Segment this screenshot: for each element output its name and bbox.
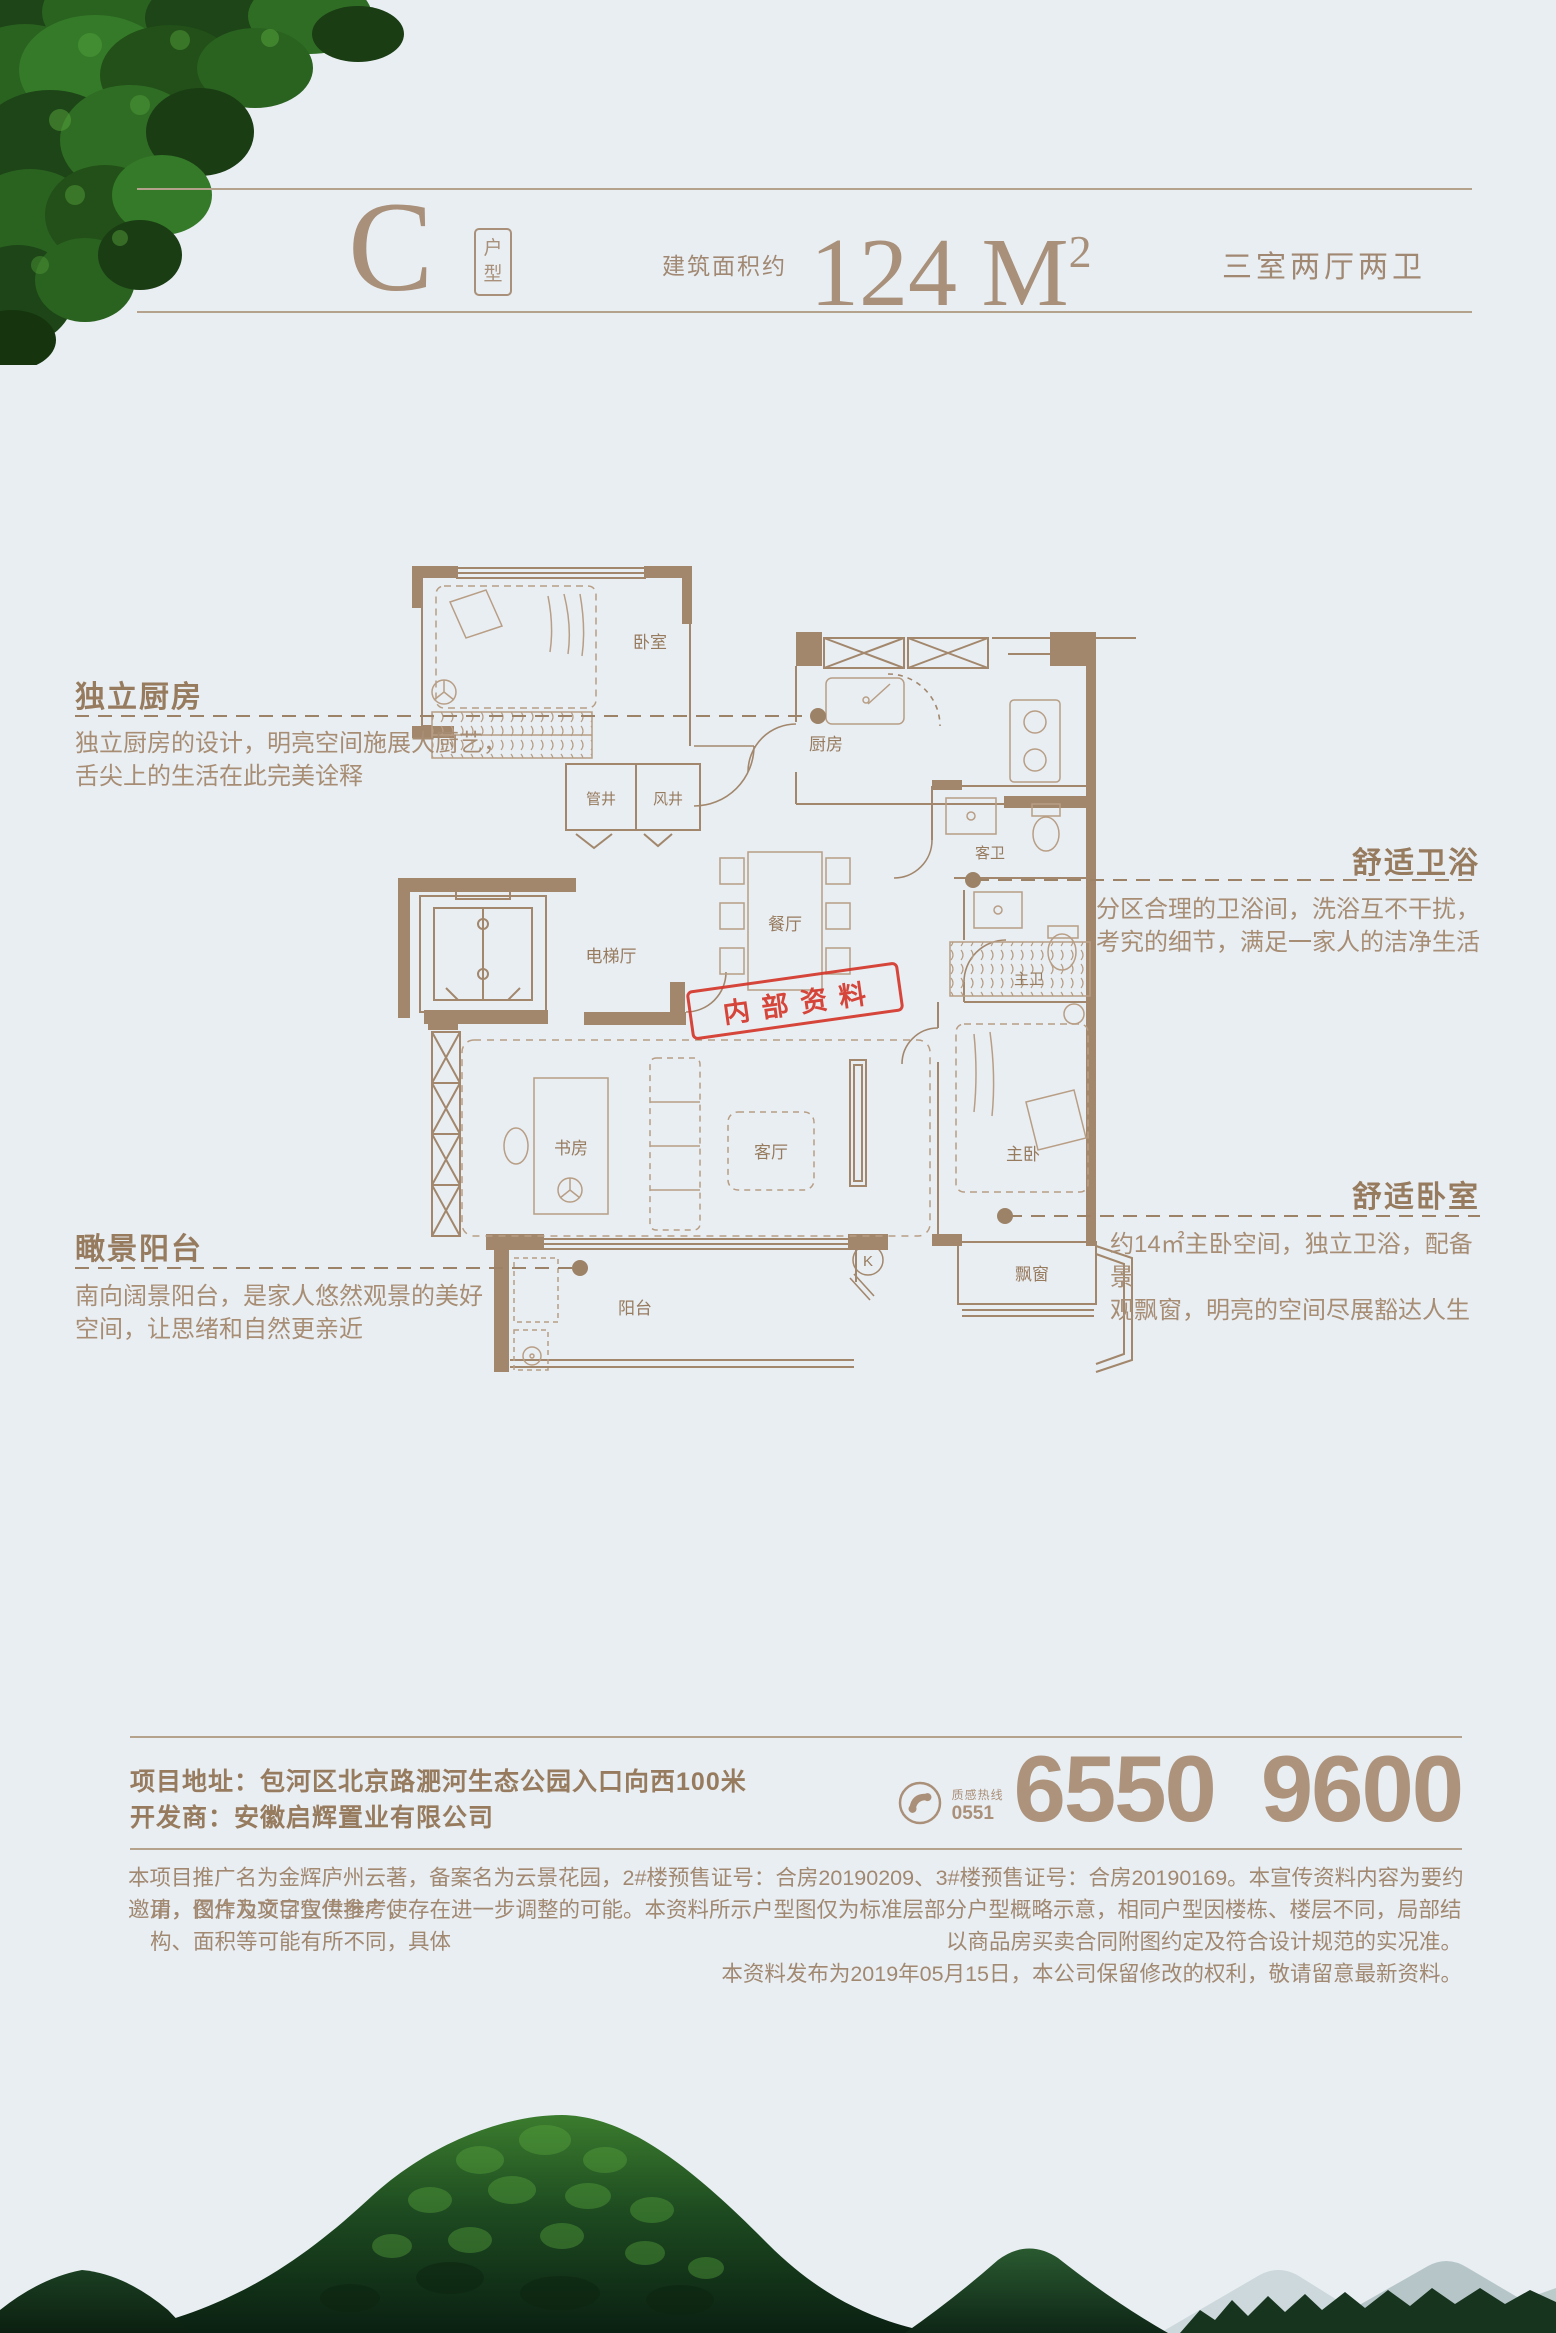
hotline-phone-number: 6550 9600 — [1014, 1745, 1462, 1833]
annotation-line: 约14㎡主卧空间，独立卫浴，配备景 — [1110, 1228, 1495, 1294]
area-superscript: 2 — [1069, 226, 1092, 277]
leader-dot-kitchen — [810, 708, 826, 724]
unit-type-char-2: 型 — [483, 262, 502, 288]
room-label-bay-window: 飘窗 — [1015, 1265, 1049, 1284]
room-label-dining: 餐厅 — [768, 915, 802, 934]
layout-summary: 三室两厅两卫 — [1222, 242, 1426, 286]
marker-k: K — [863, 1253, 873, 1270]
annotation-body-kitchen: 独立厨房的设计，明亮空间施展大厨艺， 舌尖上的生活在此完美诠释 — [75, 727, 555, 793]
developer-value: 安徽启辉置业有限公司 — [234, 1804, 494, 1832]
annotation-body-bath: 分区合理的卫浴间，洗浴互不干扰， 考究的细节，满足一家人的洁净生活 — [1096, 893, 1496, 959]
annotation-body-bedroom: 约14㎡主卧空间，独立卫浴，配备景 观飘窗，明亮的空间尽展豁达人生 — [1110, 1228, 1495, 1327]
room-label-pipe-shaft: 管井 — [586, 791, 616, 808]
room-label-living: 客厅 — [754, 1143, 788, 1162]
annotation-title-kitchen: 独立厨房 — [75, 672, 203, 716]
leader-dot-bath — [965, 872, 981, 888]
annotation-line: 观飘窗，明亮的空间尽展豁达人生 — [1110, 1294, 1495, 1327]
address-value: 包河区北京路淝河生态公园入口向西100米 — [260, 1768, 747, 1796]
annotation-line: 南向阔景阳台，是家人悠然观景的美好 — [75, 1280, 555, 1313]
unit-type-badge: 户 型 — [474, 228, 512, 296]
unit-letter: C — [348, 192, 433, 302]
annotation-title-bath: 舒适卫浴 — [1080, 838, 1480, 882]
disclaimer-line-3: 以商品房买卖合同附图约定及符合设计规范的实况准。 — [128, 1926, 1462, 1958]
area-value: 124 M2 — [810, 203, 1092, 322]
room-label-master-bath: 主卫 — [1014, 971, 1044, 988]
plan-furniture — [432, 586, 1090, 1370]
leader-dot-bedroom — [997, 1208, 1013, 1224]
room-label-kitchen: 厨房 — [809, 735, 843, 754]
annotation-title-balcony: 瞰景阳台 — [75, 1224, 203, 1268]
annotation-line: 考究的细节，满足一家人的洁净生活 — [1096, 926, 1496, 959]
annotation-line: 分区合理的卫浴间，洗浴互不干扰， — [1096, 893, 1496, 926]
developer: 开发商：安徽启辉置业有限公司 — [130, 1798, 494, 1834]
footer-bottom-rule — [130, 1848, 1462, 1850]
disclaimer-line-4: 本资料发布为2019年05月15日，本公司保留修改的权利，敬请留意最新资料。 — [128, 1958, 1462, 1990]
hotline-area-code: 0551 — [952, 1803, 994, 1825]
header-bottom-rule — [137, 311, 1472, 313]
hotline-text: 质感热线 0551 — [952, 1786, 1004, 1825]
room-label-guest-bath: 客卫 — [975, 845, 1005, 862]
floor-plan: 卧室 厨房 管井 风井 电梯厅 餐厅 客卫 主卫 书房 客厅 主卧 阳台 飘窗 … — [398, 542, 1138, 1377]
developer-label: 开发商： — [130, 1804, 234, 1832]
project-address: 项目地址：包河区北京路淝河生态公园入口向西100米 — [130, 1762, 747, 1798]
address-label: 项目地址： — [130, 1768, 260, 1796]
mountain-forest-illustration — [0, 2048, 1556, 2333]
annotation-line: 空间，让思绪和自然更亲近 — [75, 1313, 555, 1346]
unit-type-char-1: 户 — [483, 236, 502, 262]
room-label-bedroom2: 卧室 — [633, 633, 667, 652]
annotation-line: 独立厨房的设计，明亮空间施展大厨艺， — [75, 727, 555, 760]
annotation-body-balcony: 南向阔景阳台，是家人悠然观景的美好 空间，让思绪和自然更亲近 — [75, 1280, 555, 1346]
room-label-master-bedroom: 主卧 — [1006, 1145, 1040, 1164]
room-label-study: 书房 — [554, 1139, 588, 1158]
room-label-balcony: 阳台 — [618, 1299, 652, 1318]
area-prefix: 建筑面积约 — [662, 247, 787, 281]
flyer-page: C 户 型 建筑面积约 124 M2 三室两厅两卫 — [0, 0, 1556, 2333]
room-label-elevator-hall: 电梯厅 — [586, 947, 637, 966]
header-top-rule — [137, 188, 1472, 190]
hotline-block: 质感热线 0551 6550 9600 — [896, 1745, 1462, 1833]
hotline-label: 质感热线 — [952, 1786, 1004, 1803]
phone-icon — [896, 1779, 944, 1827]
leader-dot-balcony — [572, 1260, 588, 1276]
annotation-title-bedroom: 舒适卧室 — [1080, 1172, 1480, 1216]
room-label-air-shaft: 风井 — [653, 791, 683, 808]
annotation-line: 舌尖上的生活在此完美诠释 — [75, 760, 555, 793]
